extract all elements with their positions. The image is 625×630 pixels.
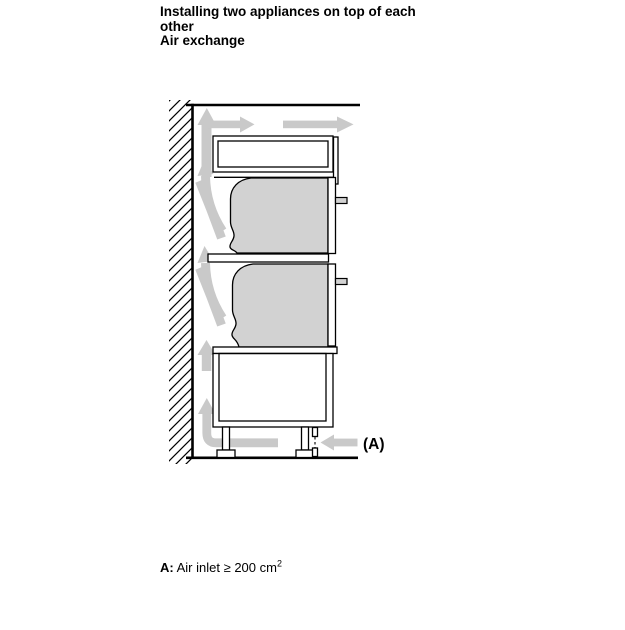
cabinet-leg-right [302,427,309,450]
plinth-vent-bottom [313,448,318,457]
cabinet-leg-left [223,427,230,450]
cabinet-foot-right [296,450,314,458]
airflow-exhaust-arrow [283,121,337,129]
air-exchange-diagram: (A) [0,0,625,625]
airflow-up-arrow-mid [202,353,212,371]
wall-hatch [169,100,192,464]
caption-prefix: A: [160,560,174,575]
airflow-exhaust-arrowhead [337,117,354,133]
lower-oven-handle [336,279,348,285]
upper-oven-body [230,178,328,253]
lower-oven-body [232,264,328,347]
airflow-right-branch-arrowhead [240,117,255,133]
base-cabinet-outer [213,354,333,428]
lower-oven-front-panel [328,264,336,346]
middle-shelf [208,254,329,262]
air-inlet-arrow [334,439,358,447]
air-inlet-arrowhead [321,435,335,451]
caption-superscript: 2 [277,559,282,569]
upper-oven-front-panel [328,178,336,254]
cabinet-structure [208,136,347,458]
figure-caption: A: Air inlet ≥ 200 cm2 [160,560,282,576]
upper-oven-handle [336,198,348,204]
cabinet-foot-left [217,450,235,458]
airflow-right-branch-arrow [208,121,240,129]
label-a: (A) [363,436,385,453]
installation-figure: (A) [0,0,625,630]
plinth-vent-top [313,428,318,437]
caption-text: Air inlet ≥ 200 cm [174,560,277,575]
base-cabinet-top [213,347,337,354]
